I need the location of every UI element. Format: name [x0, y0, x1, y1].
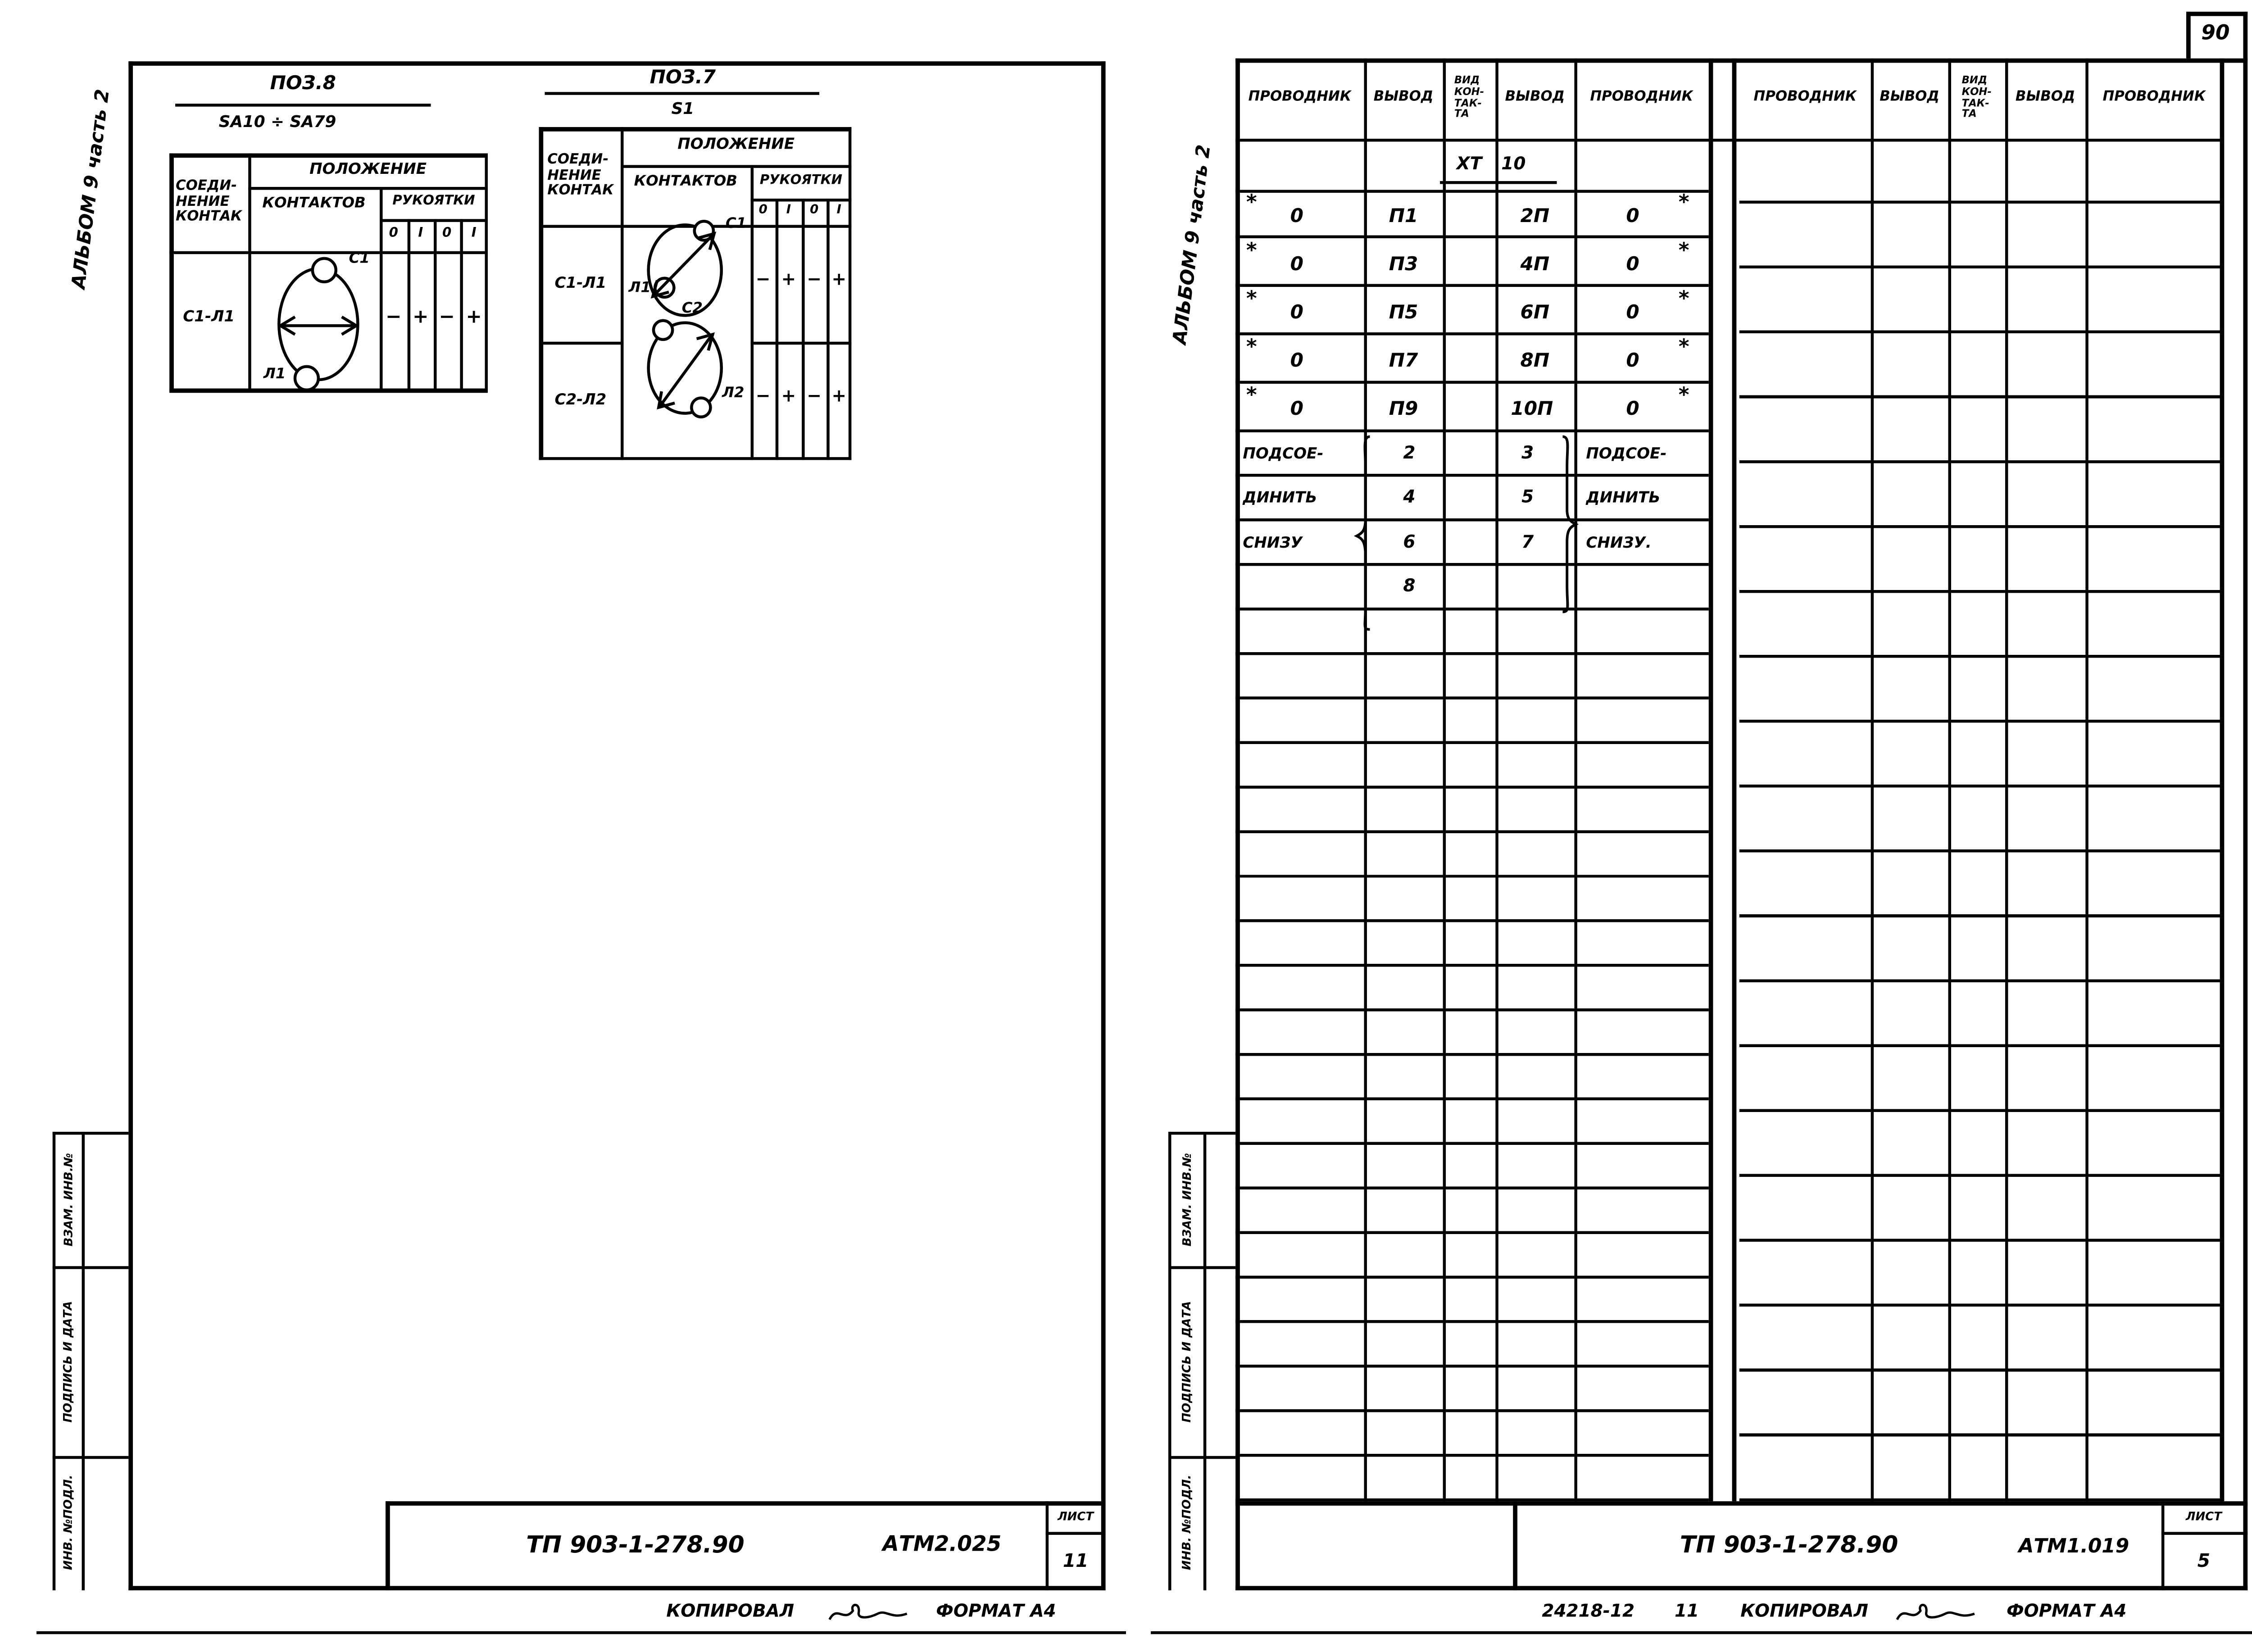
pos7-r1-val3: −: [802, 263, 826, 298]
hdr-line: СОЕДИ-: [547, 154, 613, 169]
left-titleblock-line: [1046, 1532, 1106, 1534]
pos8-hdr-p4: I: [460, 219, 488, 251]
pos8-hdr-connection: СОЕДИ- НЕНИЕ КОНТАК: [171, 158, 247, 248]
right-album-label: АЛЬБОМ 9 часть 2: [1166, 114, 1221, 374]
wire-star-left: *: [1241, 241, 1262, 264]
pos7-r1-val4: +: [826, 263, 851, 298]
left-margin-line: [36, 1631, 1126, 1634]
stamp-label: ПОДПИСЬ И ДАТА: [62, 1300, 75, 1422]
left-format-label: ФОРМАТ А4: [908, 1599, 1084, 1625]
note-left: [1243, 571, 1359, 605]
col-line: [1871, 59, 1874, 1502]
hdr-line: НЕНИЕ: [176, 195, 242, 211]
terminal-left: П5: [1364, 298, 1443, 330]
pos7-row2-connection: С2-Л2: [540, 383, 621, 419]
pos7-hdr-contacts: КОНТАКТОВ: [621, 165, 751, 199]
hdr-terminal-2: ВЫВОД: [1495, 59, 1574, 139]
hdr-line: НЕНИЕ: [547, 169, 613, 184]
pos7-line: [776, 199, 778, 460]
right-frame-right: [2243, 12, 2247, 1590]
terminal-right: 10П: [1489, 394, 1574, 426]
terminal-right: 4П: [1495, 250, 1574, 281]
pos8-title-underline: [175, 104, 431, 106]
left-stamp-inv: ИНВ. №ПОДЛ.: [53, 1456, 85, 1588]
pos7-r2-val4: +: [826, 380, 851, 415]
note-right: СНИЗУ.: [1586, 527, 1706, 561]
pos7-row1-top-contact-label: С1: [718, 213, 754, 233]
left-frame-left: [128, 61, 133, 1590]
pos7-hdr-connection: СОЕДИ- НЕНИЕ КОНТАК: [540, 132, 621, 222]
pos8-val4: +: [460, 301, 488, 336]
left-titleblock-line: [386, 1501, 1106, 1505]
terminal-left: П9: [1364, 394, 1443, 426]
pos7-title-underline: [545, 92, 819, 95]
right-frame-bottom: [1235, 1586, 2247, 1590]
left-stamp-vzam: ВЗАМ. ИНВ.№: [53, 1132, 85, 1266]
right-titleblock-line: [1513, 1501, 1516, 1590]
wire-left: 0: [1267, 250, 1326, 281]
stamp-label: ИНВ. №ПОДЛ.: [1181, 1474, 1194, 1570]
header-bottom-line: [1235, 139, 2223, 141]
stamp-label: ВЗАМ. ИНВ.№: [62, 1152, 75, 1245]
right-stamp-podpis: ПОДПИСЬ И ДАТА: [1168, 1266, 1206, 1456]
wire-left: 0: [1267, 394, 1326, 426]
wire-star-left: *: [1241, 337, 1262, 361]
wire-star-left: *: [1241, 386, 1262, 409]
pos7-hdr-p2: I: [776, 199, 802, 225]
hdr-line: ВИД: [1454, 76, 1484, 87]
pos8-row-connection: С1-Л1: [171, 300, 247, 336]
pos8-subtitle: SA10 ÷ SA79: [190, 109, 365, 136]
note-left-num: 4: [1373, 481, 1446, 516]
left-album-label: АЛЬБОМ 9 часть 2: [64, 59, 120, 318]
left-stamp-podpis: ПОДПИСЬ И ДАТА: [53, 1266, 85, 1456]
col-line: [1574, 59, 1577, 1502]
note-left-num: 6: [1373, 526, 1446, 561]
right-stamp-vzam: ВЗАМ. ИНВ.№: [1168, 1132, 1206, 1266]
wire-star-right: *: [1674, 289, 1694, 313]
col-line: [2085, 59, 2088, 1502]
pos8-val1: −: [380, 301, 408, 336]
wire-star-right: *: [1674, 386, 1694, 409]
right-margin-line: [1151, 1631, 2252, 1634]
pos7-row2-bottom-contact-label: Л2: [716, 383, 751, 403]
note-right-num: 5: [1495, 481, 1560, 516]
pos8-title: ПОЗ.8: [219, 70, 387, 100]
hdr-line: ТА: [1454, 110, 1484, 121]
note-right: ПОДСОЕ-: [1586, 438, 1706, 472]
hdr-line: КОН-: [1962, 87, 1992, 99]
pos8-val3: −: [434, 301, 460, 336]
col-line: [2005, 59, 2008, 1502]
hdr-wire-1: ПРОВОДНИК: [1235, 59, 1364, 139]
right-frame-left: [1235, 59, 1240, 1590]
hdr-wire-4: ПРОВОДНИК: [2085, 59, 2223, 139]
right-copied-label: КОПИРОВАЛ: [1721, 1599, 1889, 1625]
page-number: 90: [2186, 14, 2245, 55]
pos7-hdr-handles: РУКОЯТКИ: [751, 165, 852, 199]
right-note-brace: [1560, 434, 1577, 615]
pos7-r1-val1: −: [751, 263, 776, 298]
pos7-line: [826, 199, 829, 460]
wire-star-right: *: [1674, 241, 1694, 264]
connector-underline: [1440, 181, 1557, 184]
right-format-label: ФОРМАТ А4: [1979, 1599, 2154, 1625]
pos8-hdr-p2: I: [408, 219, 434, 251]
terminal-right: 2П: [1495, 201, 1574, 233]
col-line: [1443, 59, 1446, 1502]
note-right-num: 3: [1495, 437, 1560, 472]
left-titleblock-line: [386, 1501, 389, 1590]
terminal-left: П7: [1364, 346, 1443, 378]
hdr-wire-3: ПРОВОДНИК: [1739, 59, 1871, 139]
pos7-subtitle: S1: [628, 96, 737, 123]
pos8-hdr-p3: 0: [434, 219, 460, 251]
wire-star-right: *: [1674, 337, 1694, 361]
stamp-label: ИНВ. №ПОДЛ.: [62, 1474, 75, 1570]
note-left: ДИНИТЬ: [1243, 482, 1359, 516]
note-right-num: 7: [1495, 526, 1560, 561]
hdr-line: ТА: [1962, 110, 1992, 121]
pos7-r2-val3: −: [802, 380, 826, 415]
right-stamp-inv: ИНВ. №ПОДЛ.: [1168, 1456, 1206, 1588]
pos7-hdr-p1: 0: [751, 199, 776, 225]
pos7-r1-val2: +: [776, 263, 802, 298]
hdr-contact-type-1: ВИД КОН- ТАК- ТА: [1443, 59, 1496, 139]
wire-left: 0: [1267, 201, 1326, 233]
pos8-hdr-contacts: КОНТАКТОВ: [248, 187, 380, 219]
left-copied-label: КОПИРОВАЛ: [643, 1599, 818, 1625]
hdr-line: КОНТАК: [176, 211, 242, 226]
hdr-terminal-4: ВЫВОД: [2005, 59, 2085, 139]
right-titleblock-line: [2161, 1532, 2247, 1534]
hdr-line: КОНТАК: [547, 184, 613, 200]
hdr-line: СОЕДИ-: [176, 180, 242, 195]
wire-right: 0: [1589, 298, 1677, 330]
group-divider-line: [1709, 59, 1713, 1502]
pos7-row1-connection: С1-Л1: [540, 266, 621, 302]
pos7-hdr-p3: 0: [802, 199, 826, 225]
pos8-val2: +: [408, 301, 434, 336]
left-doc-number: ТП 903-1-278.90: [438, 1519, 832, 1571]
pos8-hdr-handles: РУКОЯТКИ: [380, 187, 488, 219]
pos7-r2-val2: +: [776, 380, 802, 415]
wire-right: 0: [1589, 250, 1677, 281]
hdr-terminal-3: ВЫВОД: [1871, 59, 1948, 139]
connector-prefix: ХТ: [1443, 147, 1496, 182]
pos7-hdr-p4: I: [826, 199, 851, 225]
wire-right: 0: [1589, 201, 1677, 233]
right-sheet-label: ЛИСТ: [2164, 1504, 2243, 1530]
footer-column-number: 11: [1665, 1599, 1708, 1625]
left-note-brace: [1355, 434, 1373, 632]
group-divider-line: [1732, 59, 1737, 1502]
note-right-num: [1495, 570, 1560, 605]
hdr-contact-type-2: ВИД КОН- ТАК- ТА: [1948, 59, 2005, 139]
stamp-label: ВЗАМ. ИНВ.№: [1181, 1152, 1194, 1245]
wire-right: 0: [1589, 346, 1677, 378]
hdr-line: КОН-: [1454, 87, 1484, 99]
stamp-label: ПОДПИСЬ И ДАТА: [1181, 1300, 1194, 1422]
pos8-top-contact-label: С1: [342, 248, 377, 268]
right-album-text: АЛЬБОМ 9 часть 2: [1170, 143, 1217, 345]
terminal-left: П3: [1364, 250, 1443, 281]
order-number: 24218-12: [1519, 1599, 1657, 1625]
right-sheet-number: 5: [2164, 1538, 2243, 1584]
hdr-terminal-1: ВЫВОД: [1364, 59, 1443, 139]
right-doc-number: ТП 903-1-278.90: [1592, 1519, 1986, 1571]
pos8-bottom-contact-label: Л1: [257, 363, 292, 384]
table-bottom-line: [1235, 1501, 2247, 1506]
left-frame-bottom: [128, 1586, 1105, 1590]
terminal-right: 8П: [1495, 346, 1574, 378]
pos8-hdr-position: ПОЛОЖЕНИЕ: [248, 153, 488, 187]
table-right-border: [2220, 59, 2225, 1502]
wire-star-right: *: [1674, 193, 1694, 216]
note-left: ПОДСОЕ-: [1243, 438, 1359, 472]
terminal-right: 6П: [1495, 298, 1574, 330]
wiring-grid-zone3: [1739, 139, 2223, 1501]
left-signature: [825, 1601, 910, 1627]
left-sheet-label: ЛИСТ: [1049, 1504, 1103, 1530]
wire-star-left: *: [1241, 289, 1262, 313]
wire-left: 0: [1267, 346, 1326, 378]
left-sheet-number: 11: [1049, 1538, 1103, 1584]
left-doc-code: АТМ2.025: [847, 1522, 1037, 1571]
left-frame-right: [1101, 61, 1106, 1590]
note-right: [1586, 571, 1706, 605]
right-doc-code: АТМ1.019: [1993, 1522, 2154, 1571]
pos7-line: [802, 199, 804, 460]
pos7-row2-top-contact-label: С2: [675, 298, 710, 318]
note-left: СНИЗУ: [1243, 527, 1359, 561]
col-line: [1948, 59, 1951, 1502]
pos7-hdr-position: ПОЛОЖЕНИЕ: [621, 127, 851, 165]
pos8-hdr-p1: 0: [380, 219, 408, 251]
pos7-row1-bottom-contact-label: Л1: [622, 277, 657, 298]
note-right: ДИНИТЬ: [1586, 482, 1706, 516]
hdr-line: ВИД: [1962, 76, 1992, 87]
left-album-text: АЛЬБОМ 9 часть 2: [69, 87, 115, 289]
scanned-drawing-sheet: { "left_page": { "album_label": "АЛЬБОМ …: [0, 0, 2252, 1652]
wire-right: 0: [1589, 394, 1677, 426]
hdr-wire-2: ПРОВОДНИК: [1574, 59, 1708, 139]
wire-star-left: *: [1241, 193, 1262, 216]
pos7-line: [751, 342, 852, 345]
pos7-title: ПОЗ.7: [599, 64, 767, 94]
sheet-stage: АЛЬБОМ 9 часть 2 ВЗАМ. ИНВ.№ ПОДПИСЬ И Д…: [0, 0, 2252, 1652]
connector-number: 10: [1501, 147, 1560, 182]
wire-left: 0: [1267, 298, 1326, 330]
note-left-num: 2: [1373, 437, 1446, 472]
note-left-num: 8: [1373, 570, 1446, 605]
connector-row-line: [1235, 190, 1709, 193]
terminal-left: П1: [1364, 201, 1443, 233]
right-signature: [1893, 1601, 1977, 1627]
pos7-r2-val1: −: [751, 380, 776, 415]
pos7-line: [539, 342, 623, 345]
